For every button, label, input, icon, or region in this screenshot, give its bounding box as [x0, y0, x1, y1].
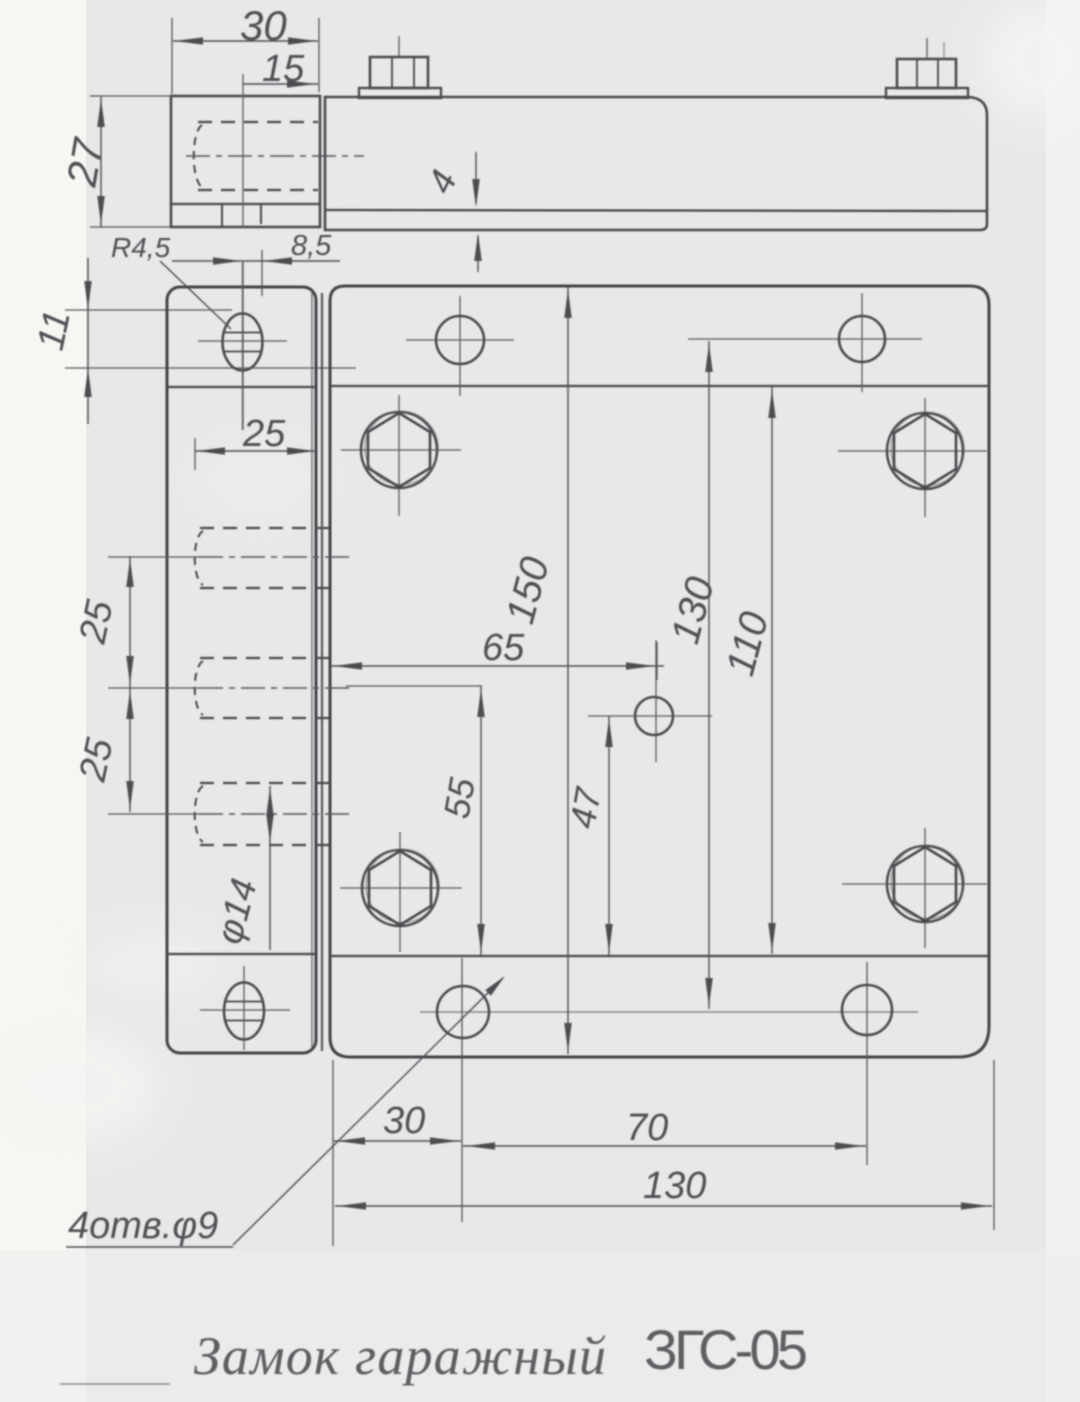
svg-text:27: 27 [57, 134, 112, 191]
svg-text:15: 15 [262, 48, 305, 90]
svg-text:8,5: 8,5 [291, 230, 332, 262]
svg-text:25: 25 [242, 413, 286, 455]
svg-text:Замок гаражный: Замок гаражный [194, 1326, 606, 1386]
svg-text:ЗГС-05: ЗГС-05 [644, 1318, 808, 1381]
svg-text:70: 70 [626, 1107, 668, 1149]
svg-text:65: 65 [482, 627, 525, 669]
svg-text:4отв.φ9: 4отв.φ9 [68, 1205, 218, 1247]
svg-text:55: 55 [436, 774, 484, 822]
svg-text:30: 30 [383, 1100, 425, 1142]
svg-text:R4,5: R4,5 [111, 232, 171, 263]
svg-text:30: 30 [240, 2, 287, 49]
svg-text:130: 130 [643, 1165, 706, 1207]
